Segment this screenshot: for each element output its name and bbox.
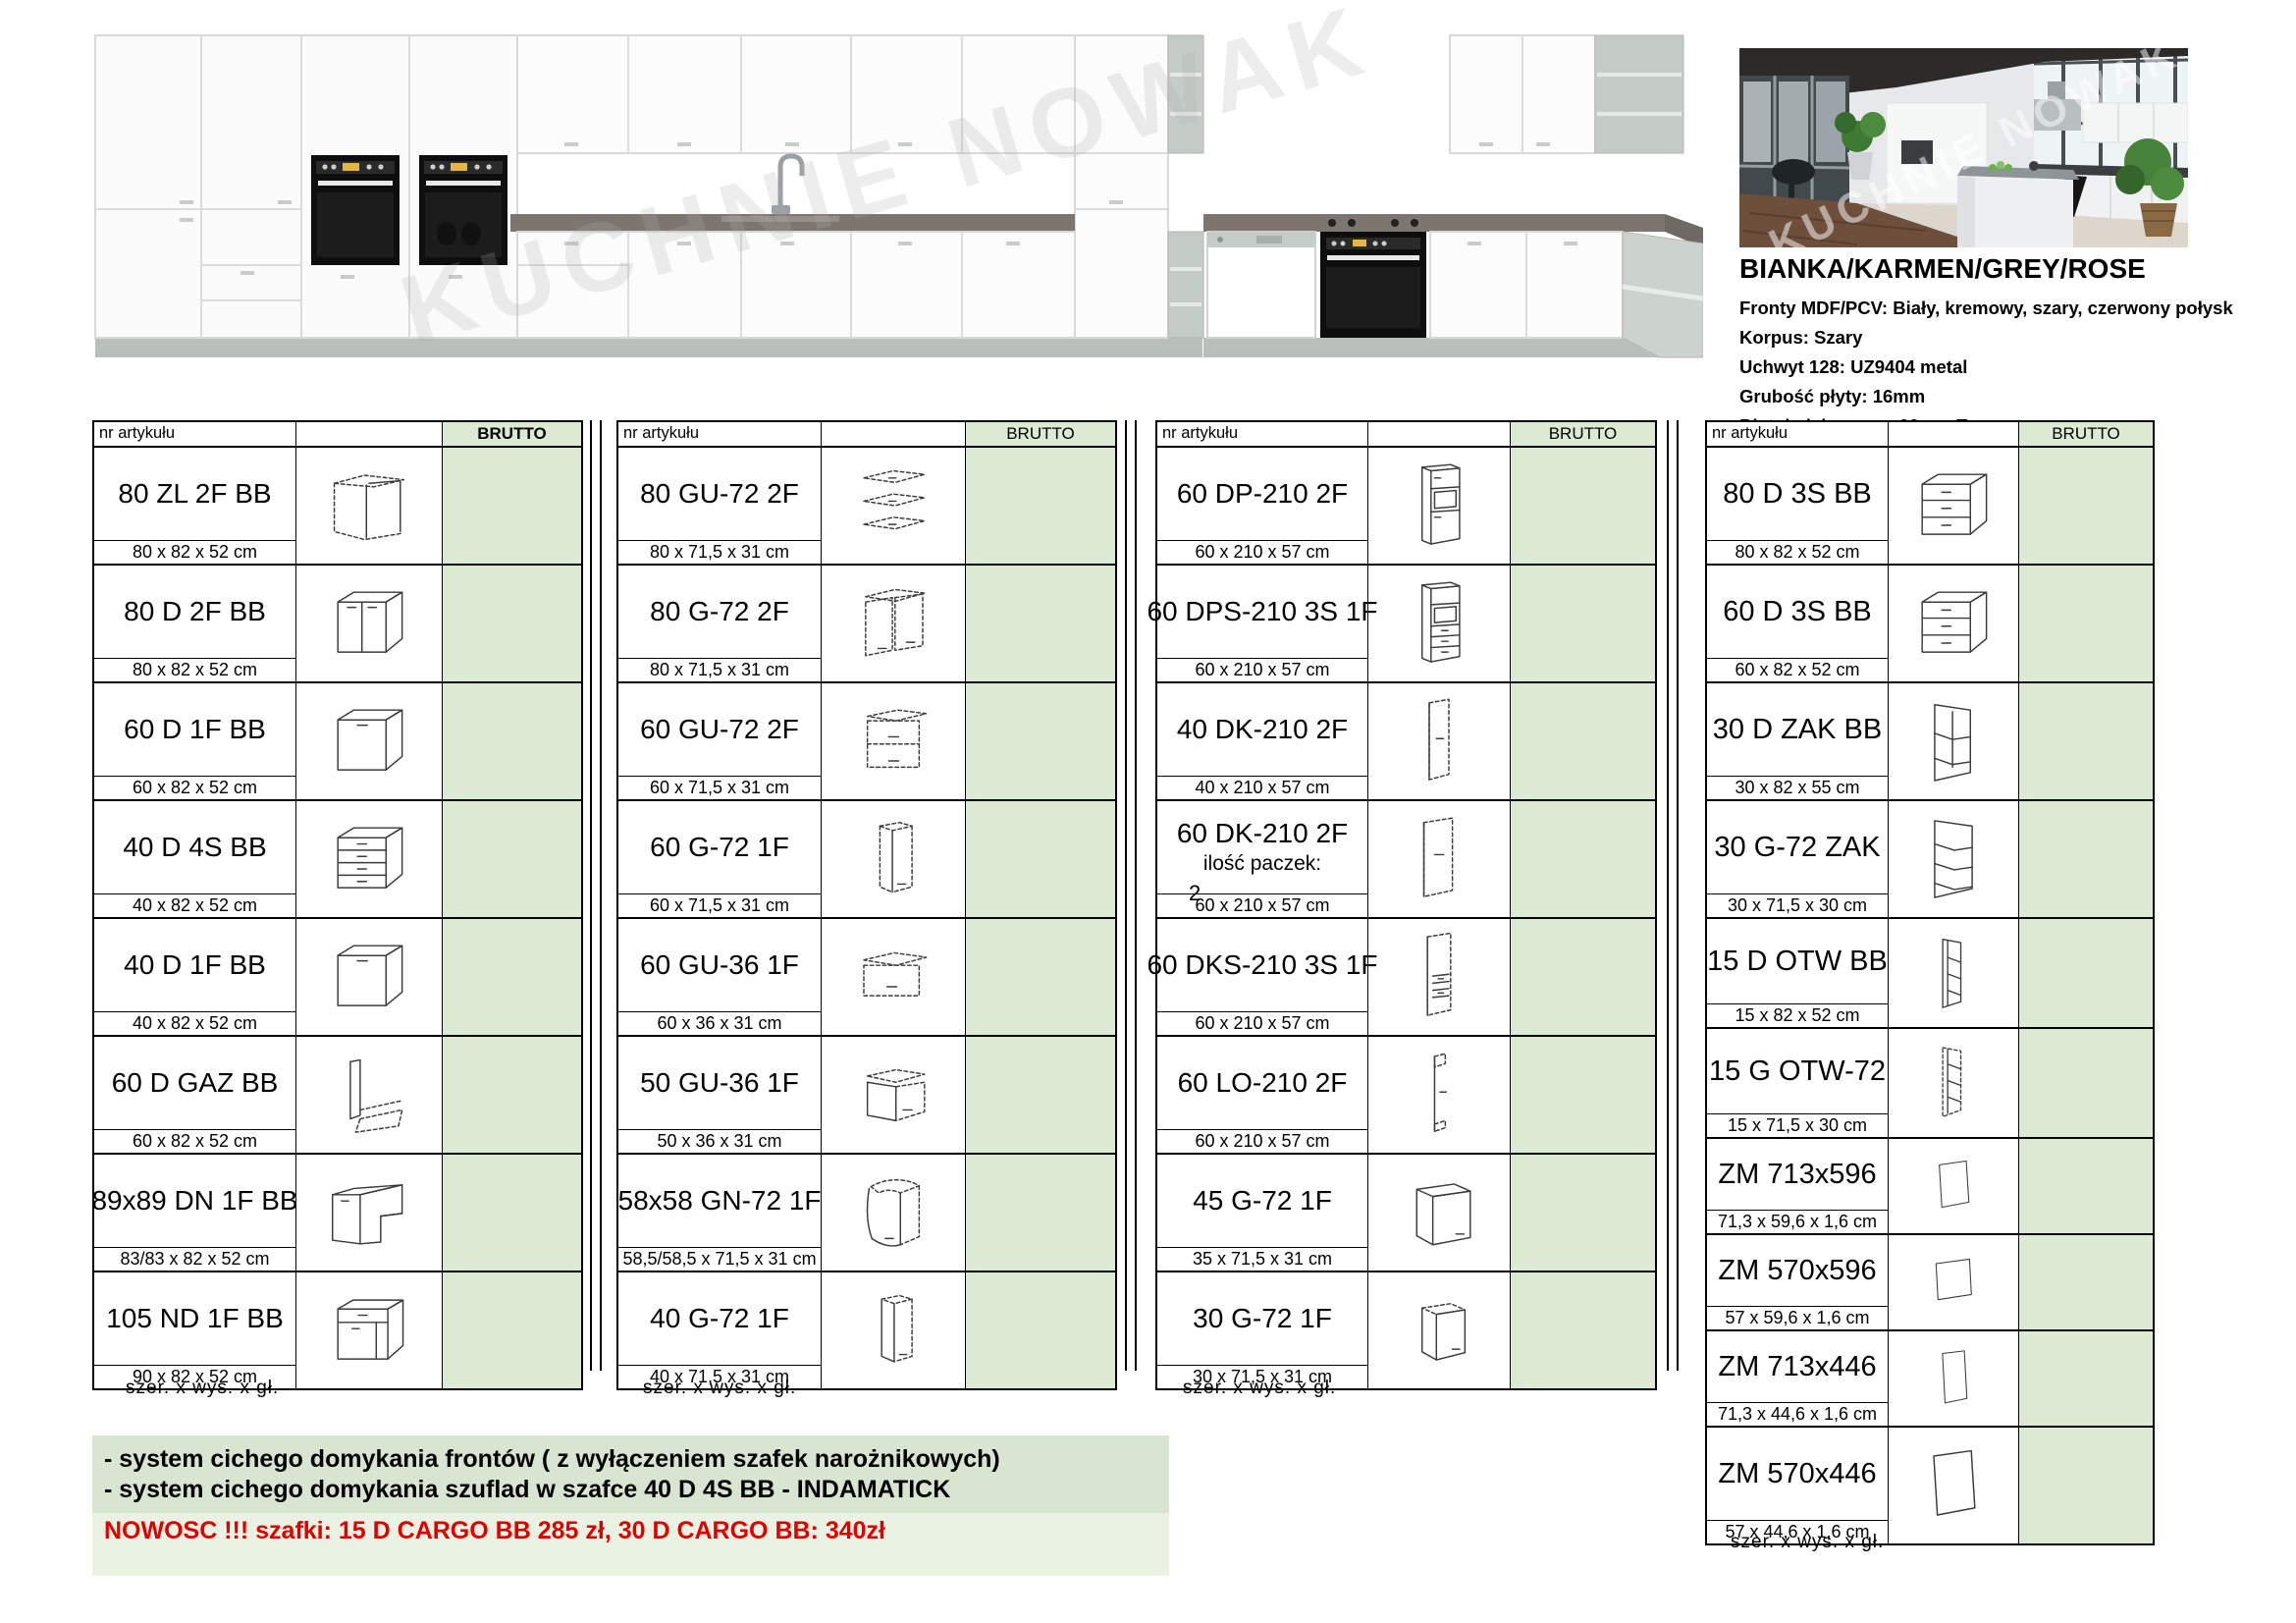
catalog-row: 89x89 DN 1F BB83/83 x 82 x 52 cm — [94, 1153, 581, 1271]
column-header-brutto: BRUTTO — [2019, 422, 2153, 446]
open-narrow-wall-icon — [1906, 1038, 2001, 1128]
cabinet-drawing-cell — [296, 566, 443, 681]
open-narrow-base-icon — [1906, 928, 2001, 1018]
price-cell-empty — [2019, 919, 2153, 1027]
catalog-row: ZM 713x59671,3 x 59,6 x 1,6 cm — [1707, 1137, 2153, 1233]
tall-oven-drawers-icon — [1386, 574, 1492, 673]
article-dimensions: 60 x 82 x 52 cm — [94, 1129, 295, 1153]
article-cell: 60 DP-210 2F60 x 210 x 57 cm — [1157, 448, 1368, 564]
article-cell: 40 G-72 1F40 x 71,5 x 31 cm — [618, 1272, 822, 1388]
article-dimensions: 57 x 59,6 x 1,6 cm — [1707, 1306, 1888, 1329]
price-cell-empty — [2019, 1029, 2153, 1137]
base-3drawer-icon — [1900, 457, 2006, 555]
spec-grubosc: Grubość płyty: 16mm — [1739, 382, 2295, 411]
tall-dashed-wide-icon — [1386, 810, 1492, 908]
cabinet-drawing-cell — [296, 683, 443, 799]
tall-dashed-narrow-icon — [1386, 692, 1492, 790]
panel-front-wide-icon — [1915, 1247, 1992, 1318]
panel-front-icon — [1900, 1436, 2006, 1535]
article-dimensions: 83/83 x 82 x 52 cm — [94, 1247, 295, 1271]
cabinet-drawing-cell — [1368, 683, 1511, 799]
base-door-drawer-icon — [316, 1281, 422, 1380]
oven-with-cooktop — [1320, 219, 1426, 338]
catalog-row: ZM 570x44657 x 44,6 x 1,6 cm — [1707, 1426, 2153, 1543]
price-cell-empty — [2019, 566, 2153, 681]
article-dimensions: 71,3 x 59,6 x 1,6 cm — [1707, 1210, 1888, 1233]
price-cell-empty — [443, 1155, 581, 1271]
price-cell-empty — [1511, 1037, 1655, 1153]
catalog-row: 60 D 1F BB60 x 82 x 52 cm — [94, 681, 581, 799]
article-number: 80 D 2F BB — [124, 597, 266, 625]
panel-front-tall-icon — [1915, 1343, 1992, 1414]
article-cell: 30 G-72 1F30 x 71,5 x 31 cm — [1157, 1272, 1368, 1388]
catalog-row: 15 D OTW BB15 x 82 x 52 cm — [1707, 917, 2153, 1027]
price-cell-empty — [443, 683, 581, 799]
cabinet-drawing-cell — [1368, 1037, 1511, 1153]
price-cell-empty — [443, 448, 581, 564]
wall-flap-low2-icon — [840, 1046, 946, 1144]
article-dimensions: 80 x 82 x 52 cm — [94, 658, 295, 681]
catalog-row: 60 DP-210 2F60 x 210 x 57 cm — [1157, 446, 1655, 564]
base-2door-icon — [316, 574, 422, 673]
article-cell: 89x89 DN 1F BB83/83 x 82 x 52 cm — [94, 1155, 296, 1271]
catalog-row: 40 D 4S BB40 x 82 x 52 cm — [94, 799, 581, 917]
article-cell: ZM 713x44671,3 x 44,6 x 1,6 cm — [1707, 1331, 1889, 1426]
article-number: 60 D GAZ BB — [112, 1068, 279, 1097]
dims-legend: szer. x wys. x gł. — [643, 1378, 796, 1399]
article-dimensions: 80 x 71,5 x 31 cm — [618, 658, 821, 681]
price-cell-empty — [1511, 566, 1655, 681]
article-cell: 58x58 GN-72 1F58,5/58,5 x 71,5 x 31 cm — [618, 1155, 822, 1271]
article-cell: 60 DK-210 2Filość paczek:60 x 210 x 57 c… — [1157, 801, 1368, 917]
product-title: BIANKA/KARMEN/GREY/ROSE — [1739, 253, 2295, 285]
cabinet-drawing-cell — [1889, 566, 2019, 681]
catalog-row: 60 D GAZ BB60 x 82 x 52 cm — [94, 1035, 581, 1153]
price-cell-empty — [2019, 1331, 2153, 1426]
note-new-cargo: NOWOSC !!! szafki: 15 D CARGO BB 285 zł,… — [104, 1516, 1169, 1546]
price-cell-empty — [1511, 448, 1655, 564]
article-cell: 60 D 1F BB60 x 82 x 52 cm — [94, 683, 296, 799]
wall-exploded-icon — [840, 457, 946, 555]
article-dimensions: 71,3 x 44,6 x 1,6 cm — [1707, 1402, 1888, 1426]
article-cell: 60 DKS-210 3S 1F60 x 210 x 57 cm — [1157, 919, 1368, 1035]
product-info: BIANKA/KARMEN/GREY/ROSE Fronty MDF/PCV: … — [1739, 253, 2295, 441]
price-table-2: nr artykułu BRUTTO 80 GU-72 2F80 x 71,5 … — [616, 420, 1117, 1390]
article-cell: 60 D 3S BB60 x 82 x 52 cm — [1707, 566, 1889, 681]
article-cell: 80 GU-72 2F80 x 71,5 x 31 cm — [618, 448, 822, 564]
wall-1door-tall-icon — [840, 810, 946, 908]
cabinet-drawing-cell — [1368, 1155, 1511, 1271]
article-number: 50 GU-36 1F — [640, 1068, 799, 1097]
catalog-row: 15 G OTW-7215 x 71,5 x 30 cm — [1707, 1027, 2153, 1137]
tall-oven-icon — [1386, 457, 1492, 555]
wall-1door-small-icon — [1386, 1281, 1492, 1380]
article-cell: 30 G-72 ZAK30 x 71,5 x 30 cm — [1707, 801, 1889, 917]
open-corner-base-icon — [1900, 692, 2006, 790]
price-table-3: nr artykułu BRUTTO 60 DP-210 2F60 x 210 … — [1155, 420, 1657, 1390]
article-dimensions: 60 x 71,5 x 31 cm — [618, 893, 821, 917]
article-dimensions: 80 x 82 x 52 cm — [94, 540, 295, 564]
article-number: 60 D 3S BB — [1723, 597, 1872, 626]
catalog-row: 60 DK-210 2Filość paczek:60 x 210 x 57 c… — [1157, 799, 1655, 917]
article-number: ZM 570x596 — [1718, 1256, 1876, 1285]
column-header-image — [1889, 422, 2019, 446]
price-cell-empty — [966, 566, 1115, 681]
base-3drawer-icon — [1900, 574, 2006, 673]
note-soft-close-fronts: - system cichego domykania frontów ( z w… — [104, 1444, 1169, 1475]
price-cell-empty — [966, 1155, 1115, 1271]
cabinet-drawing-cell — [1889, 919, 2019, 1027]
article-cell: 15 D OTW BB15 x 82 x 52 cm — [1707, 919, 1889, 1027]
column-header-brutto: BRUTTO — [966, 422, 1115, 446]
catalog-row: 60 GU-36 1F60 x 36 x 31 cm — [618, 917, 1115, 1035]
cabinet-drawing-cell — [1368, 1272, 1511, 1388]
cabinet-drawing-cell — [1368, 801, 1511, 917]
cabinet-drawing-cell — [822, 448, 966, 564]
price-cell-empty — [966, 1272, 1115, 1388]
catalog-row: 30 G-72 ZAK30 x 71,5 x 30 cm — [1707, 799, 2153, 917]
article-dimensions: 40 x 82 x 52 cm — [94, 1011, 295, 1035]
article-cell: 30 D ZAK BB30 x 82 x 55 cm — [1707, 683, 1889, 799]
table-gap-column — [590, 420, 602, 1371]
price-table-4: nr artykułu BRUTTO 80 D 3S BB80 x 82 x 5… — [1705, 420, 2155, 1545]
article-number: 60 DPS-210 3S 1F — [1147, 597, 1377, 625]
cabinet-drawing-cell — [1889, 1428, 2019, 1543]
article-number: 15 G OTW-72 — [1709, 1056, 1886, 1086]
catalog-row: 80 D 3S BB80 x 82 x 52 cm — [1707, 446, 2153, 564]
catalog-row: 30 G-72 1F30 x 71,5 x 31 cm — [1157, 1271, 1655, 1388]
article-number: 58x58 GN-72 1F — [618, 1186, 822, 1215]
article-number: 60 LO-210 2F — [1178, 1068, 1348, 1097]
cabinet-drawing-cell — [1889, 448, 2019, 564]
panel-dashed-icon — [316, 1046, 422, 1144]
catalog-row: 30 D ZAK BB30 x 82 x 55 cm — [1707, 681, 2153, 799]
article-cell: ZM 713x59671,3 x 59,6 x 1,6 cm — [1707, 1139, 1889, 1233]
article-number: 45 G-72 1F — [1193, 1186, 1332, 1215]
price-cell-empty — [1511, 801, 1655, 917]
price-cell-empty — [1511, 1272, 1655, 1388]
cabinet-drawing-cell — [822, 1037, 966, 1153]
notes-band-light: NOWOSC !!! szafki: 15 D CARGO BB 285 zł,… — [92, 1513, 1169, 1576]
note-soft-close-drawers: - system cichego domykania szuflad w sza… — [104, 1475, 1169, 1505]
article-dimensions: 60 x 82 x 52 cm — [1707, 658, 1888, 681]
base-4drawer-icon — [316, 810, 422, 908]
article-dimensions: 60 x 210 x 57 cm — [1157, 658, 1367, 681]
article-number: 60 D 1F BB — [124, 715, 266, 743]
price-cell-empty — [2019, 1139, 2153, 1233]
article-number: ZM 713x446 — [1718, 1352, 1876, 1381]
package-count-value: 2 — [1189, 881, 1201, 906]
table-header: nr artykułu BRUTTO — [94, 422, 581, 446]
kitchen-photo: KUCHNIE NOWAK — [1739, 48, 2188, 247]
article-number: 60 G-72 1F — [650, 833, 789, 861]
corner-base-icon — [316, 1163, 422, 1262]
article-number: 80 D 3S BB — [1723, 479, 1872, 509]
article-dimensions: 60 x 82 x 52 cm — [94, 776, 295, 799]
article-dimensions: 50 x 36 x 31 cm — [618, 1129, 821, 1153]
catalog-row: 80 G-72 2F80 x 71,5 x 31 cm — [618, 564, 1115, 681]
sink-base-dashed-icon — [316, 457, 422, 555]
cabinet-drawing-cell — [1889, 1331, 2019, 1426]
table-header: nr artykułu BRUTTO — [1157, 422, 1655, 446]
catalog-row: 60 LO-210 2F60 x 210 x 57 cm — [1157, 1035, 1655, 1153]
article-number: 30 D ZAK BB — [1713, 715, 1882, 744]
column-header-brutto: BRUTTO — [443, 422, 581, 446]
article-cell: 60 LO-210 2F60 x 210 x 57 cm — [1157, 1037, 1368, 1153]
dims-legend: szer. x wys. x gł. — [126, 1378, 279, 1399]
cabinet-drawing-cell — [296, 919, 443, 1035]
article-number: 80 G-72 2F — [650, 597, 789, 625]
cabinet-drawing-cell — [822, 1272, 966, 1388]
price-cell-empty — [443, 1272, 581, 1388]
table-gap-column — [1667, 420, 1679, 1371]
catalog-row: 60 D 3S BB60 x 82 x 52 cm — [1707, 564, 2153, 681]
corner-wall-icon — [840, 1163, 946, 1262]
cabinet-drawing-cell — [296, 1037, 443, 1153]
column-header-image — [822, 422, 966, 446]
wall-2door-dashed-icon — [840, 574, 946, 673]
catalog-page: KUCHNIE NOWAK — [0, 0, 2296, 1623]
cabinet-drawing-cell — [1368, 566, 1511, 681]
article-number: 60 GU-36 1F — [640, 950, 799, 979]
article-cell: 15 G OTW-7215 x 71,5 x 30 cm — [1707, 1029, 1889, 1137]
catalog-row: 80 D 2F BB80 x 82 x 52 cm — [94, 564, 581, 681]
wall-1door-solid-icon — [1386, 1163, 1492, 1262]
price-cell-empty — [2019, 1428, 2153, 1543]
base-1door-icon — [316, 928, 422, 1026]
article-number: 40 D 1F BB — [124, 950, 266, 979]
cabinet-drawing-cell — [296, 1272, 443, 1388]
catalog-row: 40 G-72 1F40 x 71,5 x 31 cm — [618, 1271, 1115, 1388]
article-dimensions: 60 x 36 x 31 cm — [618, 1011, 821, 1035]
kitchen-elevation-drawing: KUCHNIE NOWAK — [93, 8, 1703, 363]
catalog-row: 80 GU-72 2F80 x 71,5 x 31 cm — [618, 446, 1115, 564]
article-dimensions: 80 x 71,5 x 31 cm — [618, 540, 821, 564]
article-dimensions: 40 x 210 x 57 cm — [1157, 776, 1367, 799]
article-dimensions: 60 x 210 x 57 cm — [1157, 1129, 1367, 1153]
dims-legend: szer. x wys. x gł. — [1731, 1532, 1884, 1553]
article-cell: ZM 570x44657 x 44,6 x 1,6 cm — [1707, 1428, 1889, 1543]
catalog-row: 58x58 GN-72 1F58,5/58,5 x 71,5 x 31 cm — [618, 1153, 1115, 1271]
article-cell: 105 ND 1F BB90 x 82 x 52 cm — [94, 1272, 296, 1388]
wall-flap-low-icon — [840, 928, 946, 1026]
catalog-row: 60 DPS-210 3S 1F60 x 210 x 57 cm — [1157, 564, 1655, 681]
price-cell-empty — [2019, 801, 2153, 917]
cabinet-drawing-cell — [1889, 683, 2019, 799]
article-dimensions: 15 x 82 x 52 cm — [1707, 1003, 1888, 1027]
article-number: 30 G-72 1F — [1193, 1304, 1332, 1332]
column-header-article: nr artykułu — [1707, 422, 1889, 446]
article-cell: 60 D GAZ BB60 x 82 x 52 cm — [94, 1037, 296, 1153]
base-1door-icon — [316, 692, 422, 790]
article-number: 60 GU-72 2F — [640, 715, 799, 743]
price-cell-empty — [2019, 683, 2153, 799]
panel-front-icon — [1915, 1151, 1992, 1221]
notes-block: - system cichego domykania frontów ( z w… — [92, 1435, 1169, 1576]
cabinet-drawing-cell — [822, 566, 966, 681]
catalog-row: 50 GU-36 1F50 x 36 x 31 cm — [618, 1035, 1115, 1153]
article-cell: 80 ZL 2F BB80 x 82 x 52 cm — [94, 448, 296, 564]
article-dimensions: 30 x 82 x 55 cm — [1707, 776, 1888, 799]
cabinet-drawing-cell — [1368, 919, 1511, 1035]
article-number: 40 D 4S BB — [123, 833, 266, 861]
article-cell: 60 GU-36 1F60 x 36 x 31 cm — [618, 919, 822, 1035]
tall-dashed-thin-icon — [1386, 1046, 1492, 1144]
package-count-label: ilość paczek: — [1203, 852, 1321, 876]
spec-fronts: Fronty MDF/PCV: Biały, kremowy, szary, c… — [1739, 294, 2295, 323]
price-cell-empty — [966, 919, 1115, 1035]
article-cell: 80 G-72 2F80 x 71,5 x 31 cm — [618, 566, 822, 681]
table-gap-column — [1125, 420, 1137, 1371]
column-header-article: nr artykułu — [1157, 422, 1368, 446]
wall-1door-narrow-icon — [840, 1281, 946, 1380]
catalog-row: 60 GU-72 2F60 x 71,5 x 31 cm — [618, 681, 1115, 799]
article-cell: 60 GU-72 2F60 x 71,5 x 31 cm — [618, 683, 822, 799]
article-dimensions: 60 x 210 x 57 cm2 — [1157, 893, 1367, 917]
article-number: ZM 570x446 — [1718, 1459, 1876, 1488]
price-table-1: nr artykułu BRUTTO 80 ZL 2F BB80 x 82 x … — [92, 420, 583, 1390]
built-in-oven-1 — [311, 155, 400, 265]
article-number: 89x89 DN 1F BB — [91, 1186, 297, 1215]
article-cell: ZM 570x59657 x 59,6 x 1,6 cm — [1707, 1235, 1889, 1329]
article-number: 105 ND 1F BB — [106, 1304, 284, 1332]
article-cell: 80 D 2F BB80 x 82 x 52 cm — [94, 566, 296, 681]
article-cell: 80 D 3S BB80 x 82 x 52 cm — [1707, 448, 1889, 564]
article-number: 15 D OTW BB — [1707, 947, 1888, 976]
column-header-image — [1368, 422, 1511, 446]
article-dimensions: 60 x 71,5 x 31 cm — [618, 776, 821, 799]
price-cell-empty — [1511, 1155, 1655, 1271]
article-dimensions: 35 x 71,5 x 31 cm — [1157, 1247, 1367, 1271]
article-dimensions: 60 x 210 x 57 cm — [1157, 540, 1367, 564]
article-dimensions: 60 x 210 x 57 cm — [1157, 1011, 1367, 1035]
article-dimensions: 15 x 71,5 x 30 cm — [1707, 1113, 1888, 1137]
catalog-row: ZM 713x44671,3 x 44,6 x 1,6 cm — [1707, 1329, 2153, 1426]
article-number: 80 ZL 2F BB — [118, 479, 271, 508]
price-cell-empty — [966, 683, 1115, 799]
cabinet-drawing-cell — [296, 801, 443, 917]
catalog-row: 45 G-72 1F35 x 71,5 x 31 cm — [1157, 1153, 1655, 1271]
tall-dashed-drawers-icon — [1386, 928, 1492, 1026]
open-corner-wall-icon — [1900, 810, 2006, 908]
catalog-row: 60 DKS-210 3S 1F60 x 210 x 57 cm — [1157, 917, 1655, 1035]
catalog-row: 40 D 1F BB40 x 82 x 52 cm — [94, 917, 581, 1035]
article-dimensions: 80 x 82 x 52 cm — [1707, 540, 1888, 564]
catalog-row: 40 DK-210 2F40 x 210 x 57 cm — [1157, 681, 1655, 799]
cabinet-drawing-cell — [1889, 801, 2019, 917]
cabinet-drawing-cell — [1889, 1235, 2019, 1329]
column-header-brutto: BRUTTO — [1511, 422, 1655, 446]
cabinet-drawing-cell — [1889, 1139, 2019, 1233]
price-cell-empty — [2019, 1235, 2153, 1329]
cabinet-drawing-cell — [296, 1155, 443, 1271]
article-cell: 40 D 1F BB40 x 82 x 52 cm — [94, 919, 296, 1035]
table-header: nr artykułu BRUTTO — [618, 422, 1115, 446]
article-number: 30 G-72 ZAK — [1714, 833, 1880, 862]
article-number: 60 DKS-210 3S 1F — [1147, 950, 1377, 979]
catalog-row: 60 G-72 1F60 x 71,5 x 31 cm — [618, 799, 1115, 917]
spec-korpus: Korpus: Szary — [1739, 323, 2295, 352]
price-cell-empty — [443, 1037, 581, 1153]
article-cell: 45 G-72 1F35 x 71,5 x 31 cm — [1157, 1155, 1368, 1271]
cabinet-drawing-cell — [822, 683, 966, 799]
article-number: 60 DP-210 2F — [1177, 479, 1348, 508]
cabinet-drawing-cell — [296, 448, 443, 564]
price-cell-empty — [966, 1037, 1115, 1153]
catalog-row: ZM 570x59657 x 59,6 x 1,6 cm — [1707, 1233, 2153, 1329]
wall-2flap-icon — [840, 692, 946, 790]
article-number: 80 GU-72 2F — [640, 479, 799, 508]
spec-uchwyt: Uchwyt 128: UZ9404 metal — [1739, 352, 2295, 382]
dims-legend: szer. x wys. x gł. — [1183, 1378, 1336, 1399]
cabinet-drawing-cell — [822, 919, 966, 1035]
article-cell: 60 G-72 1F60 x 71,5 x 31 cm — [618, 801, 822, 917]
price-cell-empty — [1511, 919, 1655, 1035]
cabinet-drawing-cell — [1889, 1029, 2019, 1137]
price-cell-empty — [443, 919, 581, 1035]
article-number: 60 DK-210 2F — [1177, 819, 1348, 847]
cabinet-drawing-cell — [822, 801, 966, 917]
article-dimensions: 30 x 71,5 x 30 cm — [1707, 893, 1888, 917]
article-cell: 60 DPS-210 3S 1F60 x 210 x 57 cm — [1157, 566, 1368, 681]
table-header: nr artykułu BRUTTO — [1707, 422, 2153, 446]
column-header-article: nr artykułu — [618, 422, 822, 446]
cabinet-drawing-cell — [822, 1155, 966, 1271]
article-dimensions: 40 x 82 x 52 cm — [94, 893, 295, 917]
article-cell: 50 GU-36 1F50 x 36 x 31 cm — [618, 1037, 822, 1153]
price-cell-empty — [966, 448, 1115, 564]
cabinet-drawing-cell — [1368, 448, 1511, 564]
price-cell-empty — [2019, 448, 2153, 564]
catalog-row: 80 ZL 2F BB80 x 82 x 52 cm — [94, 446, 581, 564]
column-header-image — [296, 422, 443, 446]
price-cell-empty — [1511, 683, 1655, 799]
notes-band-dark: - system cichego domykania frontów ( z w… — [92, 1435, 1169, 1513]
price-cell-empty — [443, 566, 581, 681]
article-dimensions: 58,5/58,5 x 71,5 x 31 cm — [618, 1247, 821, 1271]
article-number: 40 G-72 1F — [650, 1304, 789, 1332]
article-cell: 40 D 4S BB40 x 82 x 52 cm — [94, 801, 296, 917]
price-cell-empty — [966, 801, 1115, 917]
dishwasher — [1207, 232, 1315, 338]
article-cell: 40 DK-210 2F40 x 210 x 57 cm — [1157, 683, 1368, 799]
price-cell-empty — [443, 801, 581, 917]
article-number: ZM 713x596 — [1718, 1160, 1876, 1189]
column-header-article: nr artykułu — [94, 422, 296, 446]
catalog-row: 105 ND 1F BB90 x 82 x 52 cm — [94, 1271, 581, 1388]
article-number: 40 DK-210 2F — [1177, 715, 1348, 743]
